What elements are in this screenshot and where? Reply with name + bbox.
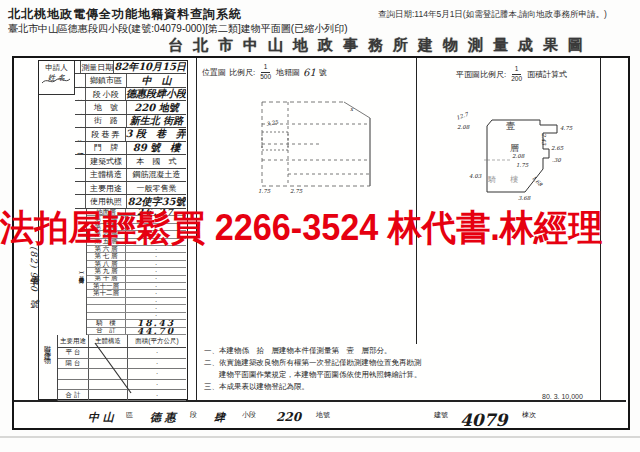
floor-label: 合 計 [87,328,126,334]
table-row: 號地 號220 地號 [75,101,186,114]
location-map-sheet-no: 61 [303,67,316,78]
table-row: 建築式樣本 國 式 [75,155,186,168]
row-label: 建築式樣 [86,155,127,167]
dimension-annotation: 4.03 [469,173,481,179]
attachment-strikethrough [87,341,147,397]
note-line: 二、依實施建築改良物所有權第一次登記僅勘測建物位置免再勘測 [204,358,604,368]
attachment-use [58,369,89,379]
dimension-annotation: 1.75 [516,162,528,168]
floor-plan-header-suffix: 面積計算式 [527,69,567,80]
footer-item: 棟次 [522,410,536,420]
location-map-sketch: 1.752.753.25x [258,94,382,198]
row-label: 段 小段 [86,88,126,100]
table-row: 主要用途一般零售業 [75,182,186,195]
location-map-scale-fraction: 1 500 [260,64,271,80]
row-group [75,169,86,181]
floor-label: 第 七 層 [87,253,126,259]
location-map-label: 位置圖 [202,67,226,78]
row-value: 新生北 街路 [127,115,186,128]
row-value: 220 地號 [127,101,186,114]
floor-label: 騎 樓 [87,320,126,326]
footer-item: 小段 [242,410,256,420]
footer-item: 4079 [460,410,507,430]
row-label: 測量日期 [81,61,114,73]
area-row: 合 計44.70 [87,328,186,335]
note-line: 一、本建物係 拾 層建物本件僅測量第 壹 層部分。 [204,346,604,356]
document-title: 台北市中山地政事務所建物測量成果圖 [168,36,593,55]
floor-label: 第 十 層 [87,276,126,282]
floor-area-value: · [126,298,186,305]
document-path: 臺北市中山區德惠段四小段(建號:04079-000)[第二類]建物平面圖(已縮小… [8,22,347,36]
applicant-label: 申請人 [39,63,74,73]
row-label: 段 巷 弄 [86,128,126,140]
dimension-annotation: 2.08 [512,153,524,159]
query-date: 查詢日期:114年5月1日(如需登記謄本,請向地政事務所申請。) [378,9,607,21]
row-group: 建 [75,115,86,127]
floor-area-value: · [126,313,186,320]
location-map-header: 位置圖 比例尺: 1 500 地籍圖 61 號 [202,64,327,80]
floor-area-value: · [126,276,186,283]
notes-block: 一、本建物係 拾 層建物本件僅測量第 壹 層部分。二、依實施建築改良物所有權第一… [204,346,604,395]
row-value: 中 山 [127,74,186,87]
row-group: 基 [75,74,86,86]
attachment-use: 合 計 [58,390,89,400]
row-label: 地 號 [86,101,127,113]
location-map-drawing [258,94,382,198]
area-row: 第十二層· [87,290,186,297]
row-label: 門 牌 [86,142,127,154]
floor-plan-label-top: 壹 [506,120,515,133]
floor-label: 第十二層 [87,290,126,296]
dimension-annotation: .30 [552,157,561,163]
floor-area-value: · [126,305,186,312]
scan-edge-shadow [0,436,640,438]
table-row: 主體構造鋼筋混凝土造 [75,169,186,182]
floor-area-value: · [126,261,186,268]
footer-item: 中 山 [88,410,114,425]
location-map-scale-label: 比例尺: [229,67,255,78]
row-value: 82年10月15日 [114,61,186,74]
row-value: 德惠段肆小段 [126,88,186,101]
floor-plan-header: 平面圖比例尺: 1 200 面積計算式 [456,66,567,82]
area-row: 第 七 層· [87,253,186,260]
parcel-footer-row: 中 山區德 惠段肆小段220地號建號4079棟次 [14,406,624,428]
dimension-annotation: 2.75 [290,188,302,194]
floor-label [87,305,126,311]
area-row: · [87,305,186,312]
applicant-box: 申請人 姓 名 [39,61,75,95]
floor-label: 第 九 層 [87,268,126,274]
system-title: 北北桃地政電傳全功能地籍資料查詢系統 [8,6,242,23]
floor-area-value: · [126,283,186,290]
footer-item: 區 [126,410,133,420]
attachment-use: 平 台 [58,348,89,358]
floor-plan-figure: 壹 層 騎 樓 12.72.084.752.432.65.302.081.754… [452,112,612,212]
footer-item: 地號 [316,410,330,420]
row-label: 街 路 [86,115,127,127]
area-row: · [87,313,186,320]
table-row: 門牌門 牌89 號 樓 [75,142,186,155]
dimension-annotation: 2.43 [541,133,547,145]
dimension-annotation: 3.68 [518,195,530,201]
row-group [75,155,86,167]
note-line: 三、本成果表以建物登記為限。 [204,382,604,392]
table-row: 基鄉鎮市區中 山 [75,74,186,87]
floor-plan-scale-label: 平面圖比例尺: [456,69,506,80]
row-label: 鄉鎮市區 [86,74,127,86]
print-code: 80. 3. 10,000 [542,393,583,400]
floor-label: 第十一層 [87,283,126,289]
area-row: · [87,298,186,305]
floor-area-value: · [126,268,186,275]
table-row: 建街 路新生北 街路 [75,115,186,128]
floor-area-value: · [126,290,186,297]
floor-plan-outline [452,112,612,212]
row-value: 3 段 巷 弄 [126,128,186,141]
floor-area-value: · [126,253,186,260]
table-row: 物段 巷 弄3 段 巷 弄 [75,128,186,141]
divider-middle-right [416,58,417,344]
survey-rows: 測量日期82年10月15日基鄉鎮市區中 山地段 小段德惠段肆小段號地 號220 … [75,61,186,209]
table-row: 測量日期82年10月15日 [75,61,186,74]
floor-area-value: 18.43 [126,320,186,327]
row-group: 號 [75,101,86,113]
area-row: 騎 樓18.43 [87,320,186,327]
row-group: 門牌 [75,142,86,154]
footer-item: 220 [276,410,301,424]
floor-plan-scale-fraction: 1 200 [511,66,522,82]
row-label: 主體構造 [86,169,127,181]
attachment-side-label: 附屬建物 [42,339,52,397]
attachment-use: 陽 台 [58,359,89,369]
area-row: 第 九 層· [87,268,186,275]
attachment-header-use: 主要用途 [58,335,89,347]
attachment-use [58,380,89,390]
floor-label [87,298,126,304]
floor-label: 第 八 層 [87,261,126,267]
margin-case-number: (82)中平字970號 [27,246,40,293]
dimension-annotation: 2.65 [551,145,563,151]
row-value: 本 國 式 [127,156,186,167]
table-row: 地段 小段德惠段肆小段 [75,88,186,101]
row-group: 地 [75,88,86,100]
row-group: 物 [75,128,86,140]
row-group [75,182,86,194]
footer-item: 肆 [214,410,225,425]
advertisement-overlay: 法拍屋輕鬆買 2266-3524 林代書.林經理 [0,204,608,252]
footer-item: 德 惠 [150,410,176,425]
dimension-annotation: x [350,106,353,112]
row-value: 一般零售業 [127,183,186,194]
dimension-annotation: 2.08 [457,124,469,130]
location-map-sheet-suffix: 號 [319,67,327,78]
area-row: 第 八 層· [87,261,186,268]
applicant-signature-scribble [39,75,73,87]
row-value: 89 號 樓 [127,142,186,155]
floor-area-value: 44.70 [126,328,186,335]
dimension-annotation: 4.75 [560,125,572,131]
row-value: 鋼筋混凝土造 [127,169,186,180]
footer-item: 段 [190,410,197,420]
area-row: 第十一層· [87,283,186,290]
floor-plan-label-arcade: 騎 樓 [488,174,524,185]
footer-item: 建號 [434,410,448,420]
area-row: 第 十 層· [87,276,186,283]
page: 北北桃地政電傳全功能地籍資料查詢系統 查詢日期:114年5月1日(如需登記謄本,… [0,0,640,452]
location-map-sheet-label: 地籍圖 [276,67,300,78]
dimension-annotation: 1.75 [258,188,270,194]
floor-label [87,313,126,319]
row-label: 主要用途 [86,182,127,194]
note-line: 建物平面圖作業規定，本建物平面圖係依使用執照轉繪計算。 [204,370,604,380]
